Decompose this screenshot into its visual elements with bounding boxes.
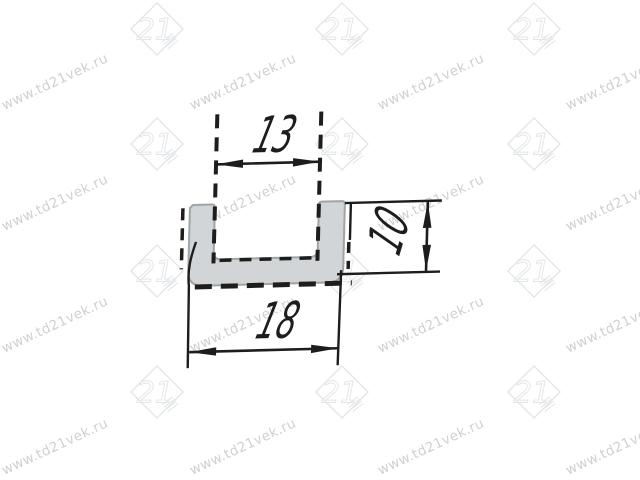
- hidden-edge-outer-right: [348, 242, 349, 269]
- drawing-group: 13 18 10: [179, 102, 445, 369]
- dimension-inner-width: 13: [216, 105, 322, 168]
- outer-right-edge-line: [350, 204, 351, 240]
- dimension-height: 10: [337, 195, 442, 274]
- arrowhead-bottom: [422, 245, 431, 271]
- dimension-label-height: 10: [357, 197, 420, 263]
- arrowhead-left: [189, 347, 216, 356]
- technical-drawing: 13 18 10: [0, 0, 640, 480]
- product-drawing-canvas: www.td21vek.ruwww.td21vek.ruwww.td21vek.…: [0, 0, 640, 480]
- dimension-label-inner-width: 13: [247, 106, 302, 166]
- dimension-label-outer-width: 18: [250, 292, 305, 352]
- hidden-edge-outer-left: [181, 208, 183, 269]
- arrowhead-top: [423, 202, 432, 228]
- extension-line-bottom: [337, 272, 440, 275]
- u-profile-cross-section: [188, 201, 345, 286]
- arrowhead-right: [293, 157, 320, 166]
- arrowhead-right: [311, 344, 338, 353]
- arrowhead-left: [216, 159, 243, 168]
- panel-hidden-edge-left: [213, 114, 217, 263]
